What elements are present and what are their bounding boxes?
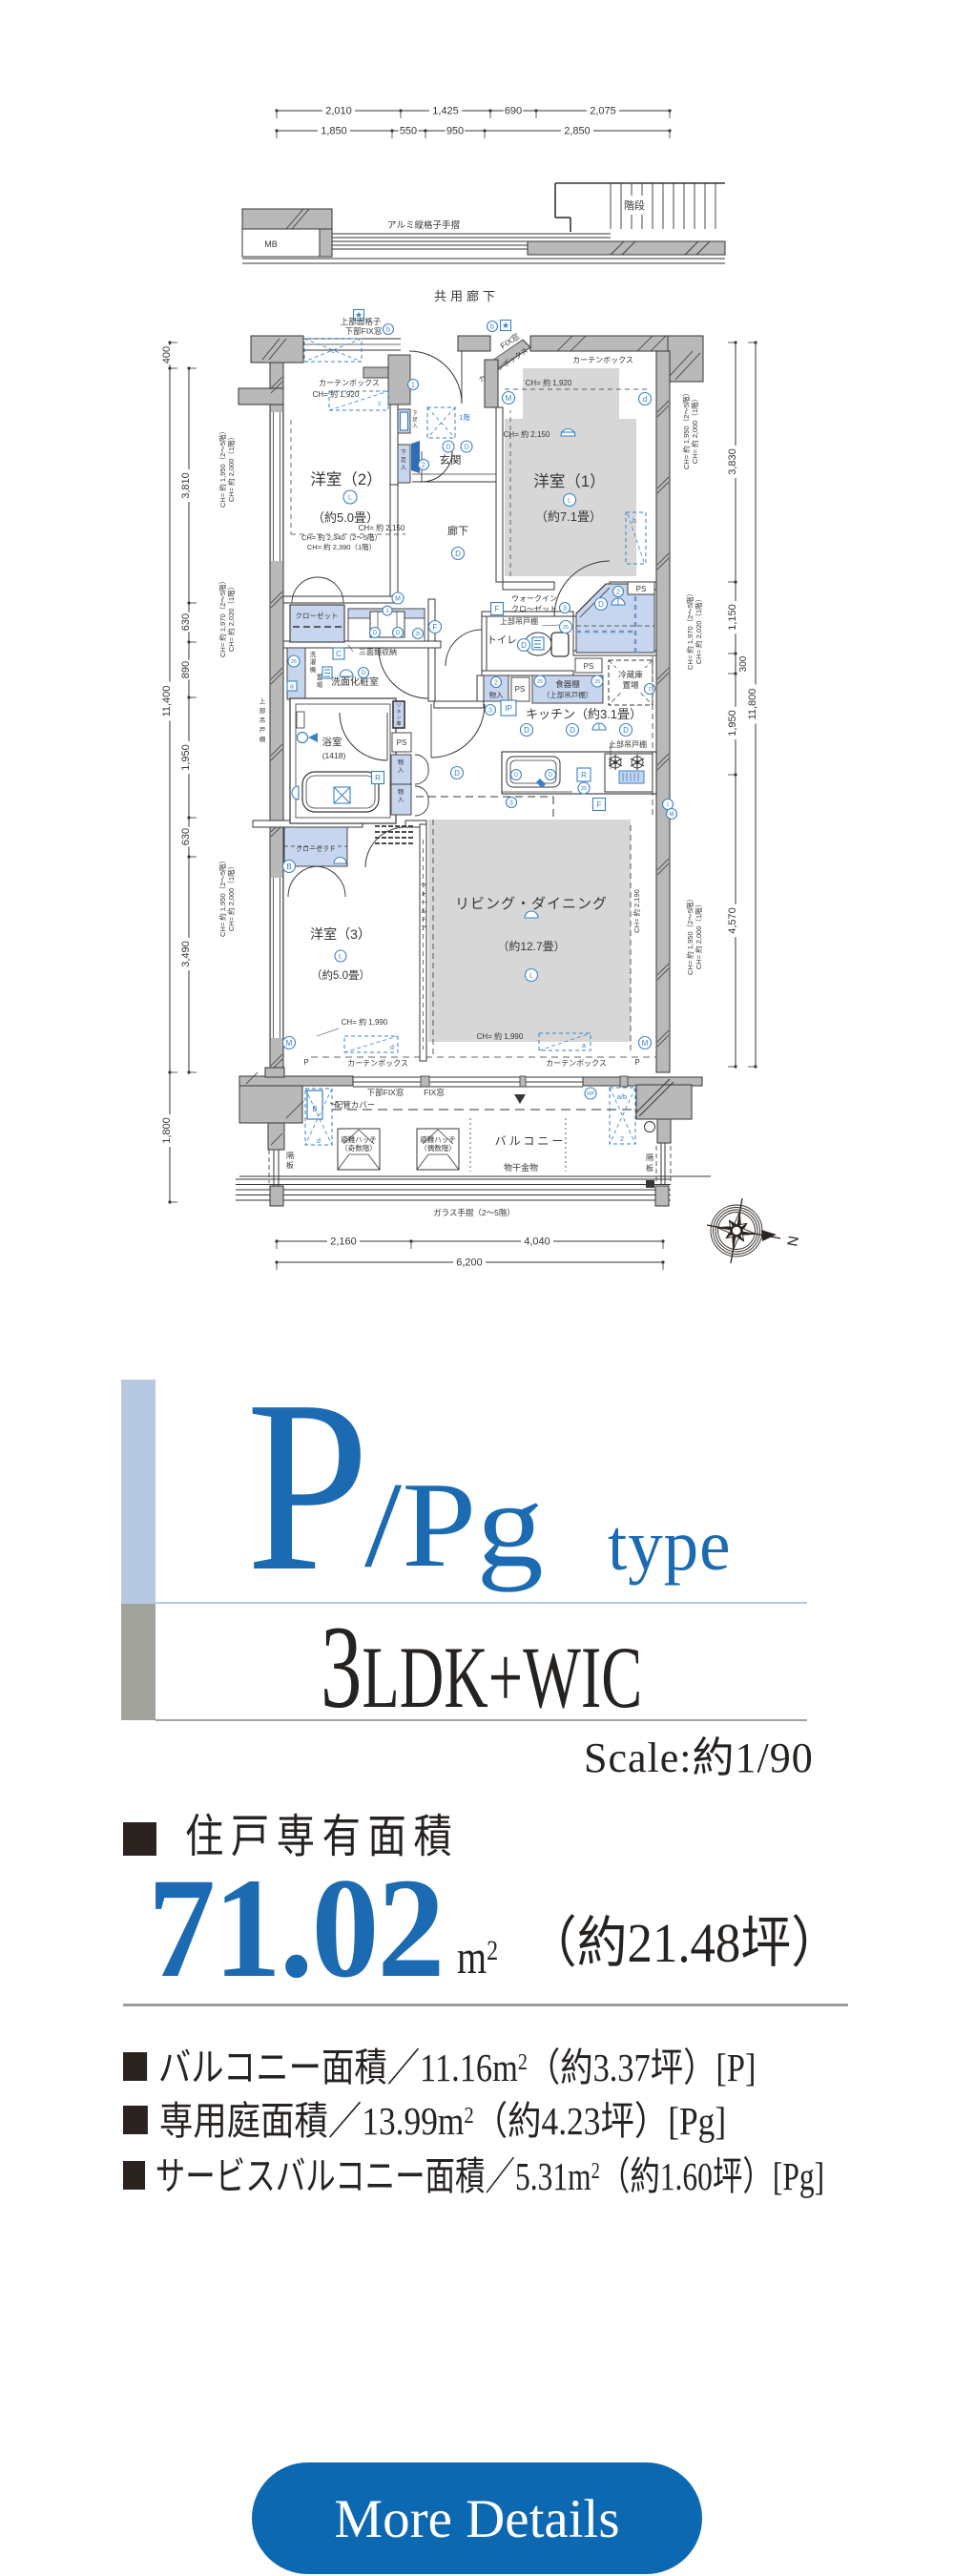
svg-text:CH= 約 1,950（2〜5階）: CH= 約 1,950（2〜5階） (685, 895, 695, 975)
svg-text:（上部吊戸棚）: （上部吊戸棚） (543, 690, 593, 699)
svg-text:上部吊戸棚: 上部吊戸棚 (500, 616, 538, 626)
svg-text:上: 上 (259, 696, 266, 705)
svg-text:c: c (331, 348, 335, 355)
svg-text:物入: 物入 (489, 690, 504, 699)
svg-text:CH= 約 2,390（1階）: CH= 約 2,390（1階） (307, 542, 376, 551)
svg-text:場: 場 (317, 680, 323, 689)
svg-text:部: 部 (259, 706, 266, 715)
svg-text:25: 25 (537, 679, 543, 685)
svg-text:D: D (514, 773, 519, 779)
svg-text:ン: ン (396, 716, 401, 721)
svg-text:PS: PS (584, 662, 594, 671)
svg-text:300: 300 (738, 655, 749, 672)
svg-text:WP: WP (587, 1091, 595, 1097)
svg-text:物: 物 (398, 758, 404, 766)
svg-text:L: L (529, 973, 533, 980)
svg-text:カーテンボックス: カーテンボックス (572, 356, 633, 364)
svg-text:★: ★ (502, 321, 509, 330)
svg-text:b: b (386, 327, 390, 334)
svg-text:D: D (455, 550, 461, 558)
svg-text:M: M (286, 1039, 293, 1048)
svg-text:洗面化粧室: 洗面化粧室 (331, 675, 379, 688)
svg-text:2: 2 (616, 590, 620, 596)
svg-text:CH= 約 1,970（2〜5階）: CH= 約 1,970（2〜5階） (685, 590, 695, 670)
svg-text:(1418): (1418) (322, 751, 346, 760)
svg-text:2,075: 2,075 (590, 106, 616, 117)
svg-text:25: 25 (563, 625, 569, 631)
svg-text:a: a (582, 1043, 586, 1049)
svg-text:CH= 約 2,020（1階）: CH= 約 2,020（1階） (694, 595, 703, 664)
svg-text:D: D (446, 445, 450, 451)
svg-text:1,425: 1,425 (432, 106, 459, 117)
svg-text:PS: PS (636, 585, 647, 593)
svg-text:2,160: 2,160 (330, 1236, 357, 1248)
svg-text:890: 890 (180, 661, 192, 678)
svg-text:隔: 隔 (646, 1153, 653, 1162)
svg-text:トイレ: トイレ (487, 634, 517, 646)
svg-text:冷蔵庫: 冷蔵庫 (618, 670, 643, 679)
svg-text:25: 25 (291, 659, 297, 665)
svg-text:D: D (464, 445, 468, 451)
svg-text:入: 入 (398, 797, 404, 803)
svg-text:D: D (454, 769, 460, 778)
svg-text:630: 630 (180, 828, 192, 845)
svg-text:CH= 約 1,950（2〜5階）: CH= 約 1,950（2〜5階） (681, 389, 691, 469)
svg-text:共用廊下: 共用廊下 (434, 289, 499, 303)
svg-text:下: 下 (401, 449, 406, 456)
svg-text:ル: ル (421, 909, 426, 915)
svg-text:CH= 約 1,950（2〜5階）: CH= 約 1,950（2〜5階） (218, 857, 227, 937)
svg-text:板: 板 (646, 1163, 653, 1173)
svg-text:D: D (396, 631, 401, 636)
svg-text:カーテンボックス: カーテンボックス (347, 1059, 408, 1068)
svg-text:d: d (390, 1045, 394, 1051)
svg-text:C: C (336, 650, 342, 658)
svg-text:アルミ縦格子手摺: アルミ縦格子手摺 (387, 219, 460, 231)
svg-text:ネ: ネ (396, 708, 401, 715)
svg-text:（約5.0畳）: （約5.0畳） (311, 968, 370, 982)
svg-text:配管カバー: 配管カバー (335, 1100, 376, 1110)
svg-text:4,570: 4,570 (727, 907, 738, 934)
svg-text:廊下: 廊下 (447, 524, 468, 537)
svg-text:物干金物: 物干金物 (504, 1162, 538, 1173)
svg-text:吊: 吊 (259, 717, 266, 724)
svg-text:CH= 約 2,190: CH= 約 2,190 (632, 889, 641, 933)
svg-text:690: 690 (505, 106, 522, 117)
svg-text:ド: ド (421, 918, 426, 924)
svg-text:入: 入 (401, 465, 406, 471)
svg-text:P: P (634, 1058, 639, 1067)
svg-text:（偶数階）: （偶数階） (420, 1143, 456, 1153)
svg-text:避難ハッチ: 避難ハッチ (420, 1134, 456, 1144)
svg-text:a/b: a/b (617, 1092, 627, 1101)
svg-text:550: 550 (400, 126, 417, 137)
svg-text:下部FIX窓: 下部FIX窓 (367, 1088, 404, 1097)
svg-text:CH= 約 1,950（2〜5階）: CH= 約 1,950（2〜5階） (218, 427, 227, 508)
svg-text:R: R (375, 774, 381, 782)
svg-text:630: 630 (180, 613, 192, 631)
svg-text:1,150: 1,150 (727, 604, 738, 631)
svg-text:（約5.0畳）: （約5.0畳） (312, 510, 379, 525)
svg-text:1,800: 1,800 (161, 1117, 173, 1144)
svg-text:D: D (598, 600, 604, 609)
svg-text:c: c (378, 401, 382, 407)
svg-text:浴室: 浴室 (322, 736, 342, 748)
svg-text:M: M (670, 812, 674, 818)
svg-text:食器棚: 食器棚 (555, 679, 580, 689)
svg-text:CH= 約 1,970（2〜5階）: CH= 約 1,970（2〜5階） (218, 577, 227, 657)
svg-text:2: 2 (620, 1134, 624, 1143)
svg-text:1: 1 (411, 383, 415, 389)
svg-text:L: L (568, 498, 571, 505)
svg-text:F: F (495, 605, 500, 613)
svg-text:M: M (506, 394, 512, 403)
svg-text:庫: 庫 (396, 719, 401, 727)
svg-text:洋室（3）: 洋室（3） (310, 926, 371, 942)
svg-text:ガラス手摺（2〜5階）: ガラス手摺（2〜5階） (433, 1208, 515, 1217)
svg-text:CH= 約 1,920: CH= 約 1,920 (526, 378, 572, 387)
svg-text:物: 物 (398, 787, 404, 796)
svg-text:1,950: 1,950 (180, 744, 192, 771)
svg-text:F: F (597, 800, 602, 809)
svg-text:11,400: 11,400 (161, 686, 173, 717)
svg-text:P: P (303, 1058, 308, 1067)
svg-text:棚: 棚 (259, 735, 266, 743)
svg-text:d: d (643, 395, 647, 404)
svg-text:t: t (649, 687, 651, 694)
svg-text:ー: ー (421, 901, 426, 906)
svg-text:N: N (783, 1235, 801, 1248)
svg-text:クローゼット: クローゼット (296, 844, 336, 853)
svg-text:4,040: 4,040 (524, 1236, 550, 1248)
svg-text:戸: 戸 (259, 726, 266, 734)
svg-text:洋室（1）: 洋室（1） (533, 472, 605, 490)
svg-text:（約12.7畳）: （約12.7畳） (497, 939, 565, 953)
svg-text:CH= 約 2,000（1階）: CH= 約 2,000（1階） (226, 862, 236, 931)
svg-text:入: 入 (398, 767, 404, 774)
svg-text:1,850: 1,850 (321, 126, 347, 137)
svg-text:R: R (581, 771, 587, 779)
svg-text:1階: 1階 (459, 412, 470, 422)
svg-text:CH= 約 2,020（1階）: CH= 約 2,020（1階） (226, 583, 236, 652)
svg-text:D: D (549, 773, 553, 779)
svg-text:950: 950 (446, 126, 464, 137)
svg-text:キッチン（約3.1畳）: キッチン（約3.1畳） (526, 707, 642, 721)
svg-text:F: F (433, 623, 438, 632)
svg-text:25: 25 (594, 679, 600, 685)
svg-text:IP: IP (505, 704, 512, 713)
svg-text:洗: 洗 (310, 650, 317, 658)
svg-text:CH= 約 1,920: CH= 約 1,920 (313, 389, 360, 399)
svg-text:CH= 約 2,000（1階）: CH= 約 2,000（1階） (690, 395, 699, 464)
svg-text:MB: MB (264, 239, 278, 249)
svg-text:CH= 約 1,990: CH= 約 1,990 (477, 1031, 524, 1041)
svg-text:M: M (395, 596, 401, 603)
svg-text:3,490: 3,490 (180, 941, 192, 967)
svg-text:クロ〜ゼット: クロ〜ゼット (511, 604, 557, 613)
svg-text:濯: 濯 (310, 657, 317, 666)
svg-text:クローゼット: クローゼット (296, 611, 339, 620)
svg-text:リビング・ダイニング: リビング・ダイニング (455, 896, 608, 912)
svg-text:階段: 階段 (624, 198, 645, 212)
svg-text:2,850: 2,850 (564, 126, 591, 137)
svg-text:隔: 隔 (286, 1152, 294, 1160)
svg-text:6,200: 6,200 (456, 1257, 483, 1269)
svg-text:b: b (633, 518, 636, 525)
svg-text:入: 入 (412, 424, 418, 429)
svg-text:3,810: 3,810 (180, 472, 192, 499)
svg-text:足: 足 (412, 417, 418, 424)
svg-text:3: 3 (509, 800, 513, 807)
svg-text:板: 板 (286, 1160, 294, 1170)
svg-text:CH= 約 2,000（1階）: CH= 約 2,000（1階） (694, 901, 703, 969)
svg-text:PS: PS (397, 738, 407, 747)
svg-text:置場: 置場 (622, 680, 639, 690)
svg-text:下部FIX窓: 下部FIX窓 (345, 326, 383, 336)
svg-text:ウ: ウ (421, 882, 426, 889)
svg-text:カーテンボックス: カーテンボックス (319, 379, 380, 387)
svg-text:上部面格子: 上部面格子 (341, 317, 382, 326)
svg-text:CH= 約 2,150: CH= 約 2,150 (504, 429, 550, 439)
svg-text:2: 2 (422, 463, 425, 469)
svg-text:上部吊戸棚: 上部吊戸棚 (609, 739, 647, 749)
svg-text:b: b (490, 324, 494, 331)
svg-text:25: 25 (581, 786, 587, 792)
svg-text:11,800: 11,800 (747, 689, 758, 720)
svg-text:B: B (312, 1105, 317, 1113)
svg-text:CH= 約 2,340（2〜5階）: CH= 約 2,340（2〜5階） (301, 532, 382, 542)
svg-text:L: L (348, 495, 352, 502)
svg-text:FIX窓: FIX窓 (424, 1088, 445, 1097)
svg-text:避難ハッチ: 避難ハッチ (341, 1134, 377, 1144)
svg-text:カーテンボックス: カーテンボックス (546, 1059, 607, 1068)
svg-text:B: B (286, 862, 291, 871)
svg-text:D: D (570, 726, 575, 735)
svg-text:3: 3 (563, 606, 567, 613)
svg-text:3,830: 3,830 (727, 448, 738, 475)
svg-text:D: D (524, 726, 529, 735)
svg-text:CH= 約 1,990: CH= 約 1,990 (342, 1017, 388, 1027)
svg-text:1,950: 1,950 (727, 710, 738, 737)
svg-text:リ: リ (396, 703, 401, 709)
svg-text:ア: ア (421, 925, 426, 932)
svg-text:a: a (290, 684, 294, 691)
svg-text:CH= 約 2,150: CH= 約 2,150 (359, 523, 405, 532)
svg-text:洋室（2）: 洋室（2） (310, 470, 382, 488)
svg-text:（奇数階）: （奇数階） (341, 1143, 377, 1153)
svg-text:ウォークイン: ウォークイン (511, 594, 557, 603)
svg-text:3: 3 (488, 708, 492, 715)
svg-text:機: 機 (310, 665, 317, 674)
svg-text:400: 400 (161, 346, 173, 364)
svg-text:D: D (373, 631, 378, 636)
svg-text:PS: PS (515, 685, 526, 694)
svg-text:2,010: 2,010 (325, 106, 352, 117)
svg-text:d: d (317, 1138, 321, 1145)
svg-text:下: 下 (412, 410, 418, 417)
svg-text:M: M (642, 1039, 649, 1048)
svg-text:ォ: ォ (421, 892, 426, 898)
svg-text:（約7.1畳）: （約7.1畳） (535, 509, 602, 524)
svg-text:D: D (521, 641, 527, 650)
svg-text:2: 2 (494, 680, 498, 687)
svg-text:CH= 約 2,000（1階）: CH= 約 2,000（1階） (226, 433, 236, 502)
svg-text:バルコニー: バルコニー (495, 1134, 567, 1148)
svg-text:足: 足 (401, 457, 406, 464)
svg-text:玄関: 玄関 (440, 453, 462, 467)
svg-text:L: L (339, 954, 342, 961)
svg-text:D: D (362, 671, 366, 676)
svg-text:25: 25 (415, 632, 421, 637)
svg-text:D: D (623, 726, 629, 735)
svg-text:三面鏡収納: 三面鏡収納 (359, 647, 397, 656)
